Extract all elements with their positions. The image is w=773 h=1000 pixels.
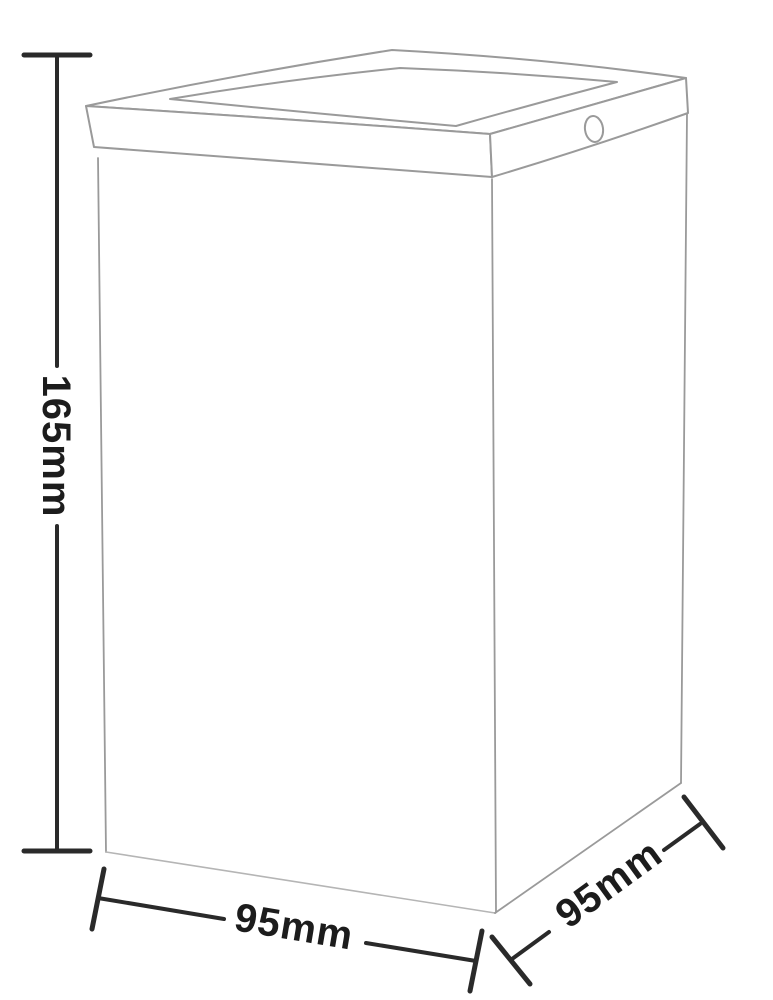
width-dimension: 95mm	[92, 869, 482, 991]
depth-dimension-line-upper	[664, 824, 700, 850]
depth-dimension-line-lower	[512, 932, 549, 959]
depth-dimension-upper-tick	[684, 797, 723, 848]
width-dimension-label: 95mm	[231, 895, 356, 958]
body-left-edge	[98, 158, 106, 852]
box-drawing	[86, 50, 688, 913]
depth-dimension-label: 95mm	[548, 831, 671, 937]
width-dimension-line-left	[98, 898, 224, 919]
technical-drawing-canvas: 165mm 95mm 95mm	[0, 0, 773, 1000]
height-dimension: 165mm	[24, 55, 90, 851]
body-front-edge	[492, 179, 496, 913]
height-dimension-label: 165mm	[34, 375, 78, 518]
body-bottom-front-edge	[106, 852, 495, 913]
dimension-drawing: 165mm 95mm 95mm	[0, 0, 773, 1000]
body-right-edge	[681, 114, 687, 783]
width-dimension-line-right	[366, 943, 476, 961]
